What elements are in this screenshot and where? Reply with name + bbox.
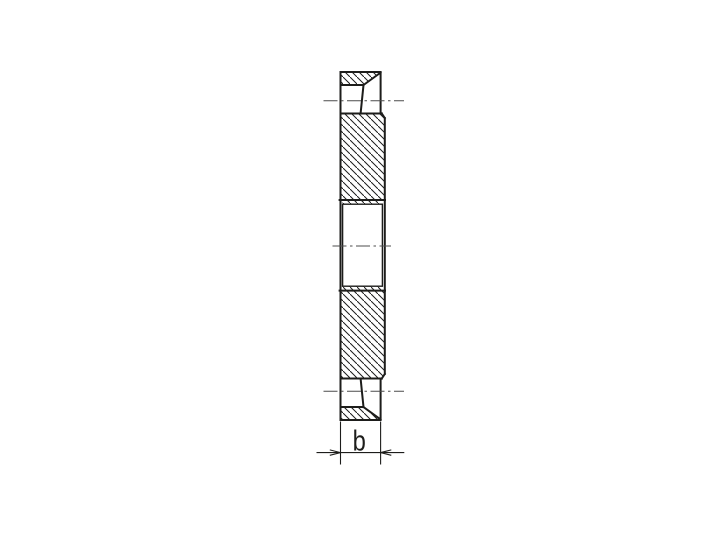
flange-section-drawing: b <box>0 0 720 540</box>
hatch-upper-body <box>341 114 385 201</box>
bore-inner-rect <box>343 204 383 286</box>
bore-outer-edges <box>340 200 385 291</box>
drawing-canvas: b <box>0 0 720 540</box>
hatch-top-rim-band <box>341 72 381 85</box>
hatch-bottom-rim-band <box>341 407 381 420</box>
dimension-b-label: b <box>353 424 366 457</box>
hatch-lower-body <box>341 291 385 379</box>
